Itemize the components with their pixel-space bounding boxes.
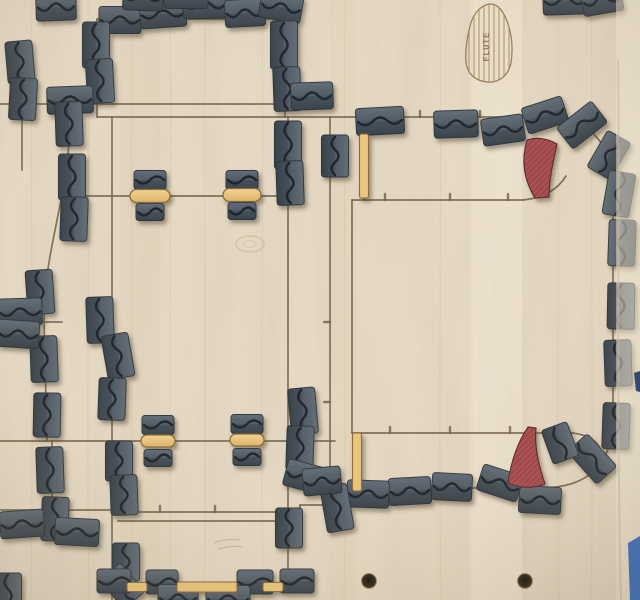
photo-of-wooden-puzzle-board: FLUTE: [0, 0, 640, 600]
photo-vignette: [0, 0, 640, 600]
